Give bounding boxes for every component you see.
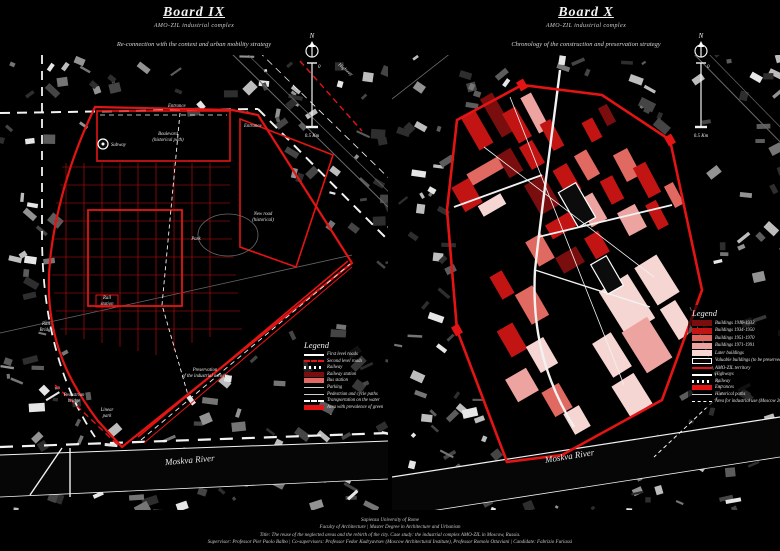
- historical-paths-swatch: [692, 394, 712, 395]
- water-transport-swatch: [304, 400, 324, 402]
- compass-icon: [695, 41, 707, 57]
- legend-row: Railway: [692, 379, 780, 384]
- legend-row: Bus station: [304, 378, 388, 383]
- parking-swatch: [304, 387, 324, 388]
- scale-half-km: 0.5 Km: [305, 134, 320, 139]
- green-area-swatch: [304, 405, 324, 410]
- legend-row: First level roads: [304, 352, 388, 357]
- board-ix-map: Highway Entrance Entrance Boulevard (his…: [0, 55, 388, 510]
- legend-row: Pedestrian and cycle paths: [304, 392, 388, 397]
- legend-row: Transportation on the water: [304, 398, 388, 403]
- label-rail-bridge-2: Bridge: [39, 328, 53, 333]
- thesis-poster: Board IX AMO-ZIL industrial complex Re-c…: [0, 0, 780, 551]
- label-new-road-1: New road: [253, 212, 273, 217]
- label-boulevard-2: (historical path): [152, 138, 184, 143]
- label-entrance-a: Entrance: [167, 104, 186, 109]
- legend-row: Area for industrial use (Moscow 2025): [692, 399, 780, 404]
- legend-row: Second level roads: [304, 359, 388, 364]
- legend-row: Valuable buildings (to be preserved): [692, 358, 780, 364]
- buildings-1916-swatch: [692, 320, 712, 326]
- legend-row: Buildings 1971-1991: [692, 343, 780, 349]
- footer-university: Sapienza University of Rome: [0, 517, 780, 524]
- legend-row: AMO-ZIL territory: [692, 366, 780, 371]
- board-ix-subtitle: AMO-ZIL industrial complex: [0, 23, 388, 29]
- railway-swatch: [692, 380, 712, 383]
- scale-zero: 0: [707, 65, 710, 70]
- compass-icon: [306, 41, 318, 57]
- footer-faculty: Faculty of Architecture | Master Degree …: [0, 524, 780, 531]
- legend-row: Parking: [304, 385, 388, 390]
- buildings-1934-swatch: [692, 328, 712, 334]
- board-x-header: Board X AMO-ZIL industrial complex: [392, 5, 780, 29]
- scale-zero: 0: [318, 65, 321, 70]
- legend-board-ix: Legend First level roads Second level ro…: [300, 337, 392, 414]
- label-new-road-2: (historical): [252, 218, 274, 223]
- north-scale-ix: N 0 0.5 Km: [295, 30, 329, 147]
- railway-lines: [392, 55, 780, 150]
- label-rail-station-2: station: [100, 302, 114, 307]
- label-preservation-1: Preservation: [192, 368, 218, 373]
- label-rail-bridge-1: Rail: [41, 322, 51, 327]
- city-texture: [0, 55, 388, 510]
- label-pedestrian-bridge-2: bridge: [68, 399, 81, 404]
- legend-row: Buildings 1916-1933: [692, 320, 780, 326]
- board-x-map: Moskva River: [392, 55, 780, 510]
- legend-row: Railway station: [304, 372, 388, 377]
- moskva-river: [0, 433, 388, 497]
- label-linear-park-1: Linear: [100, 408, 114, 413]
- legend-row: Highways: [692, 372, 780, 377]
- moskva-river: [392, 417, 780, 510]
- buildings-1951-swatch: [692, 335, 712, 341]
- highways-swatch: [692, 374, 712, 376]
- label-subway: Subway: [111, 143, 127, 148]
- industrial-area-swatch: [692, 401, 712, 402]
- railway-swatch: [304, 366, 324, 369]
- north-n-label: N: [309, 32, 315, 40]
- scale-bar: [695, 63, 707, 127]
- buildings-1971-swatch: [692, 343, 712, 349]
- legend-board-x: Legend Buildings 1916-1933 Buildings 193…: [688, 305, 780, 408]
- footer: Sapienza University of Rome Faculty of A…: [0, 517, 780, 546]
- footer-supervisors: Supervisor: Professor Pier Paolo Balbo |…: [0, 539, 780, 546]
- later-buildings-swatch: [692, 350, 712, 356]
- valuable-buildings-swatch: [692, 358, 712, 364]
- scale-half-km: 0.5 Km: [694, 134, 709, 139]
- legend-row: Later buildings: [692, 350, 780, 356]
- legend-row: Railway: [304, 365, 388, 370]
- legend-row: Buildings 1934-1950: [692, 328, 780, 334]
- board-x: Board X AMO-ZIL industrial complex Chron…: [392, 0, 780, 515]
- legend-title: Legend: [692, 308, 780, 318]
- label-entrance-b: Entrance: [243, 124, 262, 129]
- legend-title: Legend: [304, 340, 388, 350]
- legend-row: Entrances: [692, 385, 780, 390]
- plan-grid: [52, 163, 242, 355]
- legend-row: Buildings 1951-1970: [692, 335, 780, 341]
- territory-swatch: [692, 367, 712, 369]
- north-n-label: N: [698, 32, 704, 40]
- label-park: Park: [190, 237, 201, 242]
- scale-bar: [306, 63, 318, 127]
- legend-row: Area with prevalence of green: [304, 405, 388, 410]
- board-ix-strategy: Re-connection with the context and urban…: [0, 41, 388, 48]
- board-ix-title: Board IX: [0, 5, 388, 21]
- footer-thesis-title: Title: The reuse of the neglected areas …: [0, 532, 780, 539]
- label-boulevard-1: Boulevard: [158, 132, 178, 137]
- label-preservation-2: of the industrial activity: [182, 374, 229, 379]
- second-level-roads-swatch: [304, 360, 324, 362]
- board-ix-header: Board IX AMO-ZIL industrial complex: [0, 5, 388, 29]
- railway-station-swatch: [304, 372, 324, 377]
- board-ix: Board IX AMO-ZIL industrial complex Re-c…: [0, 0, 388, 515]
- label-pedestrian-bridge-1: Pedestrian: [63, 393, 85, 398]
- board-x-subtitle: AMO-ZIL industrial complex: [392, 23, 780, 29]
- bus-station-swatch: [304, 378, 324, 383]
- pedestrian-paths-swatch: [304, 394, 324, 395]
- board-x-strategy: Chronology of the construction and prese…: [392, 41, 780, 48]
- first-level-roads-swatch: [304, 354, 324, 356]
- legend-row: Historical paths: [692, 392, 780, 397]
- chronology-buildings: [451, 92, 694, 434]
- board-x-title: Board X: [392, 5, 780, 21]
- entrances-swatch: [692, 385, 712, 390]
- north-scale-x: N 0 0.5 Km: [684, 30, 718, 147]
- label-linear-park-2: park: [102, 414, 113, 419]
- label-rail-station-1: Rail: [102, 296, 112, 301]
